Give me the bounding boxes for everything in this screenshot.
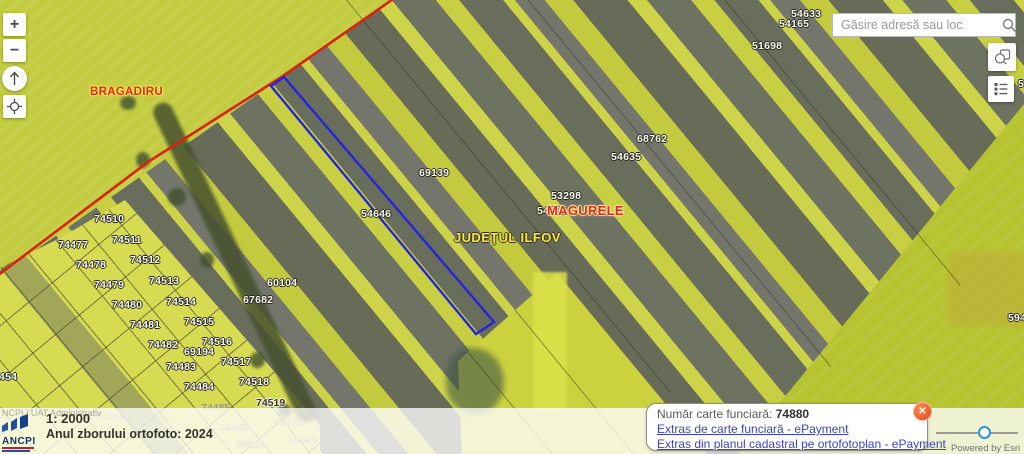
zoom-out-button[interactable]: − [3, 39, 26, 62]
search-input[interactable] [833, 18, 1002, 32]
zoom-slider-handle[interactable] [978, 426, 991, 439]
parcel-number-label: 74514 [166, 296, 196, 308]
legend-list-icon [994, 82, 1008, 96]
land-book-value: 74880 [776, 407, 809, 421]
map-label-layer: 5463354165516986876254635532985466169139… [0, 0, 1024, 454]
ancpi-flag-icon [2, 414, 32, 432]
town-label: MAGURELE [547, 203, 624, 218]
parcel-number-label: 74477 [58, 239, 88, 251]
parcel-number-label: 74478 [76, 259, 106, 271]
parcel-number-label: 74513 [149, 275, 179, 287]
compass-north-button[interactable] [2, 66, 27, 91]
parcel-number-label: 594 [1008, 312, 1024, 324]
parcel-number-label: 51698 [752, 40, 782, 52]
zoom-slider-track[interactable] [936, 432, 1018, 434]
parcel-number-label: 67682 [243, 294, 273, 306]
parcel-number-label: 68762 [637, 133, 667, 145]
parcel-number-label: 53298 [551, 190, 581, 202]
town-label: BRAGADIRU [90, 86, 163, 98]
map-canvas[interactable]: 5463354165516986876254635532985466169139… [0, 0, 1024, 454]
parcel-number-label: 5 [1018, 78, 1024, 90]
parcel-number-label: 60104 [267, 277, 297, 289]
search-icon[interactable] [1002, 18, 1017, 33]
parcel-number-label: 54165 [779, 18, 809, 30]
parcel-number-label: 74512 [130, 254, 160, 266]
powered-by-esri: Powered by Esri [951, 443, 1020, 454]
parcel-number-label: 74484 [184, 381, 214, 393]
extract-land-book-link[interactable]: Extras de carte funciară - ePayment [657, 422, 917, 437]
town-label: JUDEŢUL ILFOV [454, 230, 561, 245]
parcel-number-label: 74481 [130, 319, 160, 331]
parcel-number-label: 74511 [112, 234, 142, 246]
up-arrow-icon [8, 71, 21, 86]
parcel-number-label: 74510 [94, 213, 124, 225]
parcel-number-label: 54635 [611, 151, 641, 163]
popup-close-button[interactable]: ✕ [913, 402, 932, 421]
parcel-number-label: 74480 [112, 299, 142, 311]
zoom-in-button[interactable]: + [3, 13, 26, 36]
parcel-number-label: 74515 [184, 316, 214, 328]
map-scale-label: 1: 2000 [46, 411, 90, 426]
parcel-number-label: 7454 [0, 371, 17, 383]
parcel-number-label: 74479 [94, 279, 124, 291]
parcel-number-label: 74482 [148, 339, 178, 351]
ancpi-logo: ANCPI [2, 414, 42, 452]
locate-button[interactable] [3, 95, 26, 118]
map-app: 5463354165516986876254635532985466169139… [0, 0, 1024, 454]
extract-cadastral-plan-link[interactable]: Extras din planul cadastral pe ortofotop… [657, 437, 917, 452]
parcel-number-label: 74483 [166, 361, 196, 373]
crosshair-icon [7, 99, 22, 114]
legend-button[interactable] [988, 76, 1014, 102]
parcel-number-label: 69194 [184, 346, 214, 358]
parcel-number-label: 54646 [361, 208, 391, 220]
parcel-number-label: 69139 [419, 167, 449, 179]
basemap-gallery-button[interactable] [988, 43, 1016, 71]
basemap-icon [994, 49, 1011, 65]
parcel-number-label: 74517 [221, 356, 251, 368]
ortho-year-label: Anul zborului ortofoto: 2024 [46, 427, 213, 441]
search-box [832, 13, 1016, 37]
parcel-number-label: 74518 [239, 376, 269, 388]
parcel-popup: Număr carte funciară: 74880 Extras de ca… [646, 403, 928, 451]
land-book-number: Număr carte funciară: 74880 [657, 407, 917, 422]
